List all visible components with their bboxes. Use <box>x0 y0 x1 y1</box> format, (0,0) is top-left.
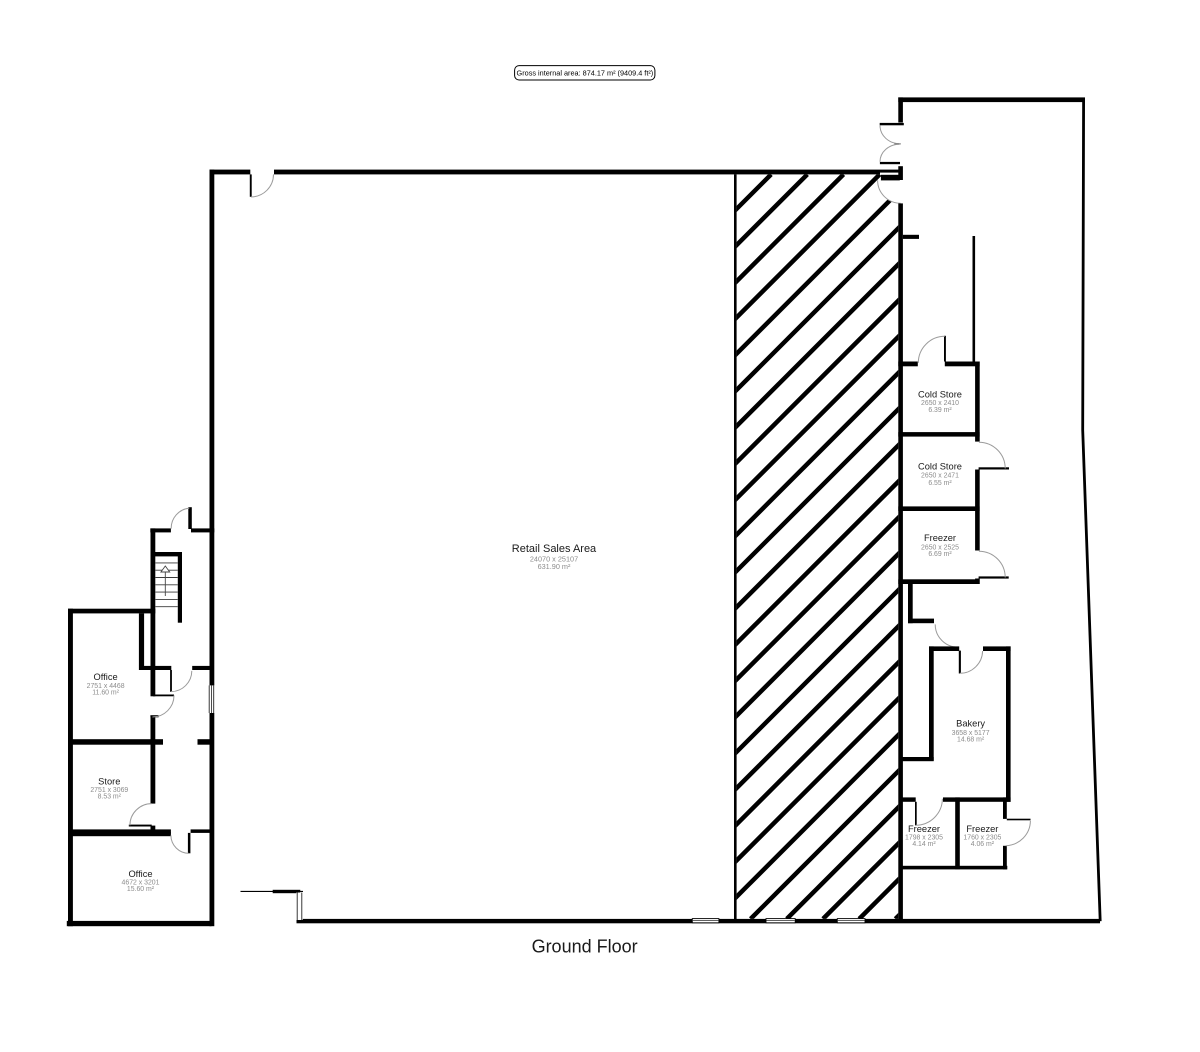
svg-text:Freezer: Freezer <box>908 824 940 834</box>
svg-text:15.60 m²: 15.60 m² <box>127 886 155 893</box>
svg-text:8.53 m²: 8.53 m² <box>98 793 122 800</box>
svg-text:Freezer: Freezer <box>924 533 956 543</box>
svg-text:631.90 m²: 631.90 m² <box>538 562 571 571</box>
svg-text:4.14 m²: 4.14 m² <box>912 841 936 848</box>
svg-text:Cold Store: Cold Store <box>918 389 962 399</box>
svg-text:Store: Store <box>98 777 120 787</box>
svg-text:2650 x 2471: 2650 x 2471 <box>921 473 959 480</box>
svg-text:Retail Sales Area: Retail Sales Area <box>512 543 597 555</box>
svg-text:11.60 m²: 11.60 m² <box>92 689 119 696</box>
svg-text:6.69 m²: 6.69 m² <box>928 551 952 558</box>
svg-text:Office: Office <box>128 869 152 879</box>
svg-text:Gross internal area: 874.17 m²: Gross internal area: 874.17 m² (9409.4 f… <box>517 69 654 78</box>
svg-text:4.06 m²: 4.06 m² <box>971 841 995 848</box>
svg-text:Cold Store: Cold Store <box>918 461 962 471</box>
svg-text:Freezer: Freezer <box>966 824 998 834</box>
svg-text:6.39 m²: 6.39 m² <box>928 407 952 414</box>
svg-text:Office: Office <box>94 672 118 682</box>
svg-text:6.55 m²: 6.55 m² <box>928 480 952 487</box>
svg-text:Ground Floor: Ground Floor <box>532 937 638 957</box>
svg-text:Bakery: Bakery <box>956 718 985 728</box>
svg-text:14.68 m²: 14.68 m² <box>957 737 985 744</box>
